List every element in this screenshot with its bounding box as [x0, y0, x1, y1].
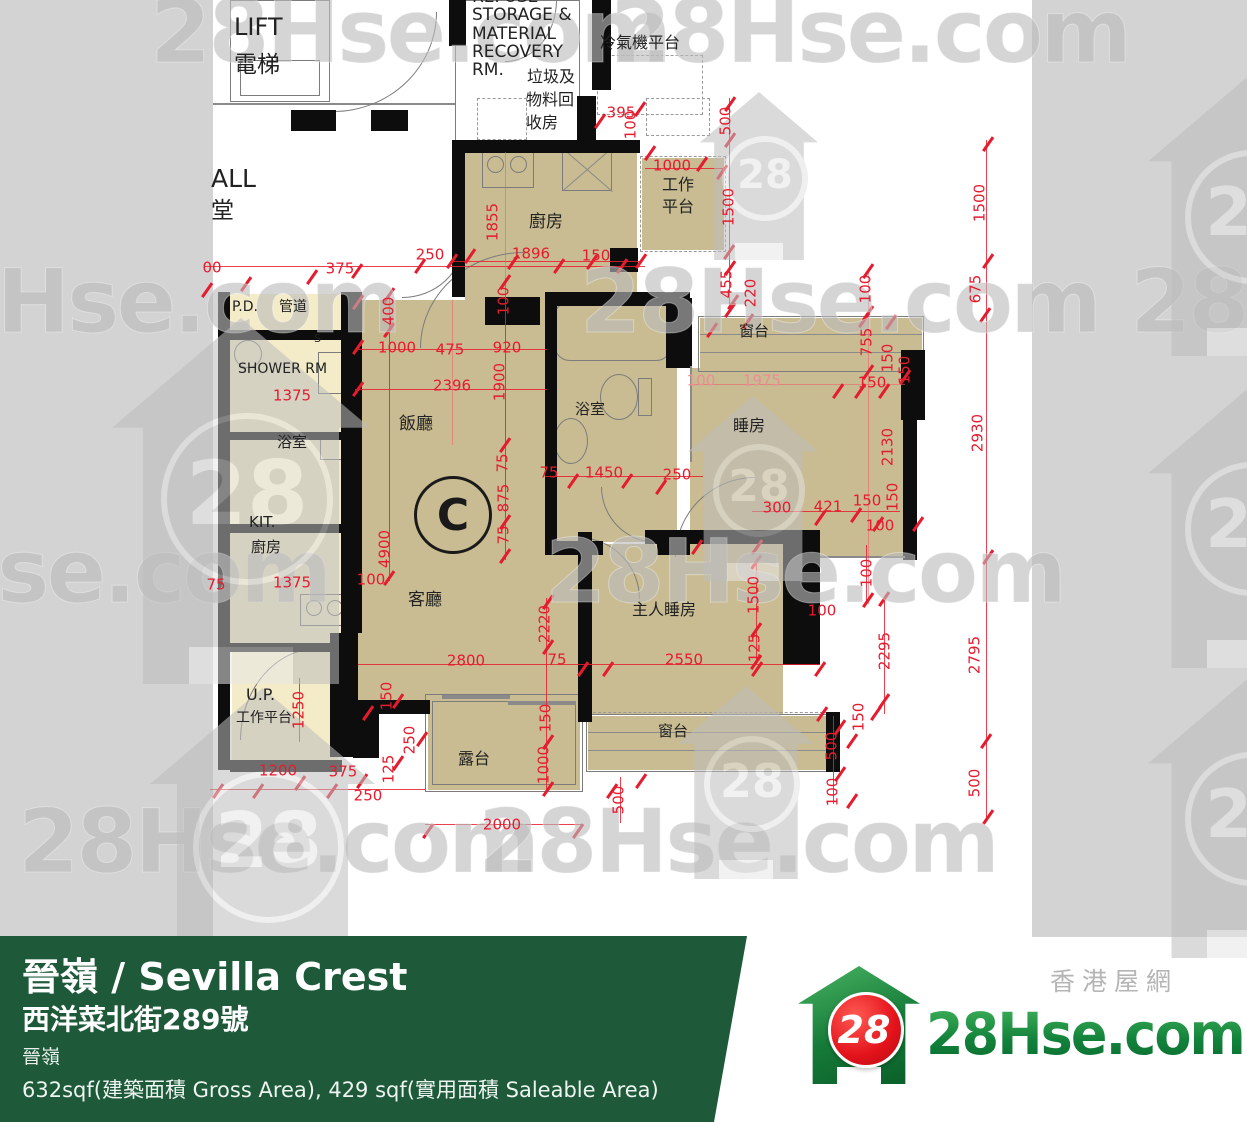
dim-label: 150: [881, 344, 896, 373]
dim-label: 1896: [512, 247, 550, 262]
dim-label: 100: [826, 778, 841, 807]
dim-label: 500: [719, 107, 734, 136]
dim-label: 1500: [973, 184, 988, 222]
stove-burner-2: [510, 156, 527, 173]
dim-label: 2130: [881, 428, 896, 466]
watermark-text: 28Hse.com: [610, 0, 1129, 83]
dim-label: 2550: [665, 653, 703, 668]
dim-label: 100: [624, 111, 639, 140]
room-label: P.D.: [232, 299, 258, 315]
watermark-house-icon: 28: [678, 686, 814, 879]
dim-label: 375: [326, 262, 355, 277]
watermark-text: 28Hse.com: [580, 250, 1099, 353]
wall: [291, 110, 336, 131]
property-area: 632sqf(建築面積 Gross Area), 429 sqf(實用面積 Sa…: [22, 1074, 659, 1104]
room-label: 主人睡房: [632, 601, 696, 619]
dim-label: 1000: [378, 341, 416, 356]
room-label: 工作平台: [236, 710, 292, 726]
room-label: 平台: [662, 198, 694, 216]
dim-label: 75: [496, 453, 511, 472]
dim-label: 1855: [486, 203, 501, 241]
dim-label: 500: [968, 769, 983, 798]
dim-label: 100: [808, 604, 837, 619]
dim-label: 150: [898, 356, 913, 385]
dimension-line: [986, 140, 987, 820]
property-title: 晉嶺 / Sevilla Crest: [22, 946, 407, 1001]
dim-label: 150: [852, 703, 867, 732]
dim-label: 150: [582, 249, 611, 264]
room-label: 管道: [279, 299, 307, 315]
dim-label: 100: [687, 374, 716, 389]
dim-label: 250: [663, 468, 692, 483]
refuse-fixture: [477, 98, 527, 140]
room-label: 堂: [211, 198, 234, 224]
dim-label: 150: [853, 494, 882, 509]
room-label: 廚房: [251, 539, 281, 556]
dim-label: 875: [497, 484, 512, 513]
property-banner: 晉嶺 / Sevilla Crest 西洋菜北街289號 晉嶺 632sqf(建…: [0, 936, 762, 1122]
dim-label: 500: [825, 732, 840, 761]
dim-label: 920: [493, 341, 522, 356]
logo-28-badge: 28: [828, 992, 904, 1068]
dim-label: 1000: [537, 746, 552, 784]
dim-label: 1900: [493, 363, 508, 401]
room-label: 物料回: [526, 91, 574, 109]
dim-label: 375: [329, 765, 358, 780]
dimension-tick: [982, 136, 994, 151]
dim-label: 250: [354, 789, 383, 804]
toilet: [600, 374, 638, 420]
dim-label: 2000: [483, 818, 521, 833]
dim-label: 421: [814, 500, 843, 515]
dim-label: 2220: [538, 605, 553, 643]
watermark-text: 28Hse.com: [150, 0, 669, 83]
dim-label: 75: [497, 525, 512, 544]
dim-label: 1200: [259, 764, 297, 779]
dim-label: 125: [748, 634, 763, 663]
dim-label: 1975: [743, 374, 781, 389]
dim-label: 100: [866, 519, 895, 534]
site-logo-text: 28Hse.com: [926, 1000, 1244, 1068]
dim-label: 1375: [273, 576, 311, 591]
dim-label: 150: [539, 704, 554, 733]
dimension-tick: [635, 773, 647, 788]
room-label: S: [314, 333, 321, 346]
dim-label: 150: [886, 483, 901, 512]
dimension-tick: [846, 733, 858, 748]
unit-letter-badge: C: [414, 476, 492, 554]
dim-label: 100: [859, 275, 874, 304]
site-logo-tagline: 香港屋網: [1050, 962, 1178, 998]
balcony-door-1: [442, 695, 510, 699]
dimension-tick: [870, 705, 882, 720]
room-label: 浴室: [575, 401, 605, 418]
dim-label: 1375: [273, 389, 311, 404]
dim-label: 755: [860, 328, 875, 357]
room-label: 電梯: [234, 52, 280, 78]
wall: [452, 140, 640, 153]
dim-label: 00: [202, 261, 221, 276]
dim-label: 2396: [433, 379, 471, 394]
dim-label: 75: [547, 653, 566, 668]
dim-label: 500: [612, 786, 627, 815]
dim-label: 455: [720, 270, 735, 299]
dim-label: 475: [436, 343, 465, 358]
dim-label: 400: [382, 297, 397, 326]
dim-label: 1450: [585, 466, 623, 481]
room-label: LIFT: [234, 14, 283, 42]
wall: [485, 297, 540, 325]
dim-label: 220: [744, 279, 759, 308]
dim-label: 100: [860, 559, 875, 588]
toilet-tank: [638, 378, 652, 416]
floorplan-page: C LIFT電梯ALL堂REFUSESTORAGE &MATERIALRECOV…: [0, 0, 1247, 1122]
dim-label: 2930: [971, 414, 986, 452]
room-label: 垃圾及: [527, 68, 575, 86]
dim-label: 2800: [447, 654, 485, 669]
watermark-house-icon: 28: [1148, 680, 1247, 958]
dimension-line: [358, 664, 820, 665]
dim-label: 2295: [878, 632, 893, 670]
room-label: 工作: [662, 176, 694, 194]
room-label: 冷氣機平台: [600, 34, 680, 52]
dim-label: 250: [403, 726, 418, 755]
dim-label: 4900: [378, 530, 393, 568]
property-estate: 晉嶺: [22, 1042, 60, 1069]
dim-label: 150: [380, 682, 395, 711]
room-label: STORAGE &: [472, 6, 572, 26]
room-label: 窗台: [658, 723, 688, 740]
room-label: SHOWER RM: [238, 361, 327, 377]
dim-label: 1000: [653, 159, 691, 174]
room-label: KIT.: [249, 514, 275, 531]
site-logo: 28 28Hse.com 香港屋網: [788, 948, 1238, 1098]
dim-label: 675: [969, 275, 984, 304]
room-label: 睡房: [733, 417, 765, 435]
room-label: 露台: [458, 750, 490, 768]
room-label: RM.: [472, 61, 504, 81]
dim-label: 100: [497, 287, 512, 316]
dim-label: 2795: [968, 636, 983, 674]
dim-label: 1250: [292, 691, 307, 729]
dim-label: 125: [382, 755, 397, 784]
basin: [554, 418, 588, 464]
room-label: 飯廳: [399, 415, 433, 435]
dim-label: 150: [858, 376, 887, 391]
room-label: U.P.: [246, 686, 275, 704]
wall: [371, 110, 408, 131]
watermark-house-icon: 28: [1148, 390, 1247, 668]
dim-label: 75: [206, 578, 225, 593]
room-label: 廚房: [529, 213, 563, 233]
dimension-line: [452, 300, 453, 445]
dim-label: 300: [763, 501, 792, 516]
dim-label: 100: [357, 573, 386, 588]
room-label: 收房: [526, 114, 558, 132]
room-label: 浴室: [277, 434, 307, 451]
wall: [452, 153, 465, 297]
dim-label: 250: [416, 248, 445, 263]
stove-burner-1: [487, 156, 504, 173]
room-label: 客廳: [408, 591, 442, 611]
dim-label: 75: [539, 466, 558, 481]
dim-label: 1500: [722, 188, 737, 226]
wall: [545, 306, 557, 546]
property-address: 西洋菜北街289號: [22, 998, 248, 1038]
room-label: 窗台: [739, 323, 769, 340]
room-label: ALL: [211, 165, 256, 194]
unit-letter: C: [437, 490, 469, 541]
wall: [577, 96, 596, 144]
watermark-house-icon: 28: [1148, 78, 1247, 356]
dim-label: 1500: [747, 576, 762, 614]
logo-28-number: 28: [838, 1008, 891, 1052]
